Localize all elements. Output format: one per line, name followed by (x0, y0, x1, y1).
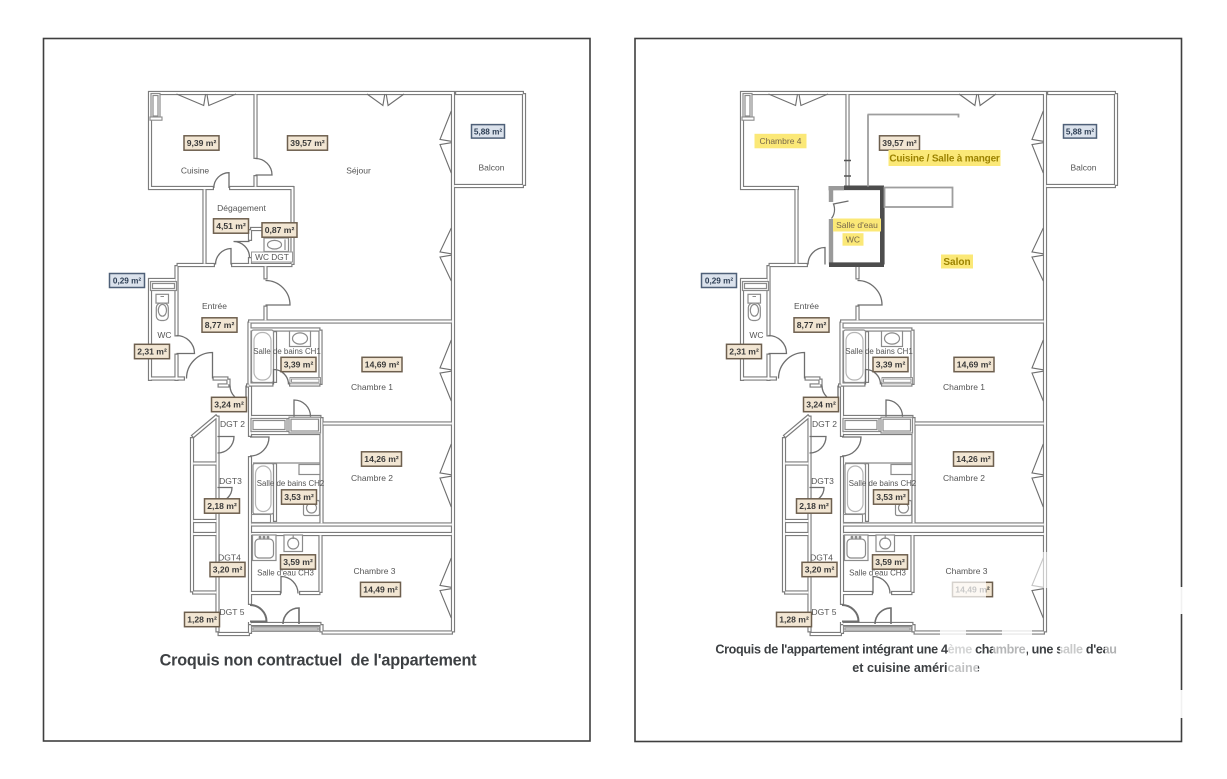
svg-text:Salle de bains CH2: Salle de bains CH2 (849, 479, 917, 488)
svg-text:Séjour: Séjour (346, 166, 371, 176)
svg-text:4,51 m²: 4,51 m² (216, 221, 246, 231)
svg-text:2,31 m²: 2,31 m² (729, 347, 759, 357)
svg-text:8,77 m²: 8,77 m² (797, 320, 827, 330)
svg-text:DGT4: DGT4 (810, 553, 833, 563)
svg-text:Balcon: Balcon (1071, 163, 1097, 173)
svg-text:2,18 m²: 2,18 m² (207, 501, 237, 511)
svg-text:DGT4: DGT4 (218, 553, 241, 563)
svg-text:Balcon: Balcon (479, 163, 505, 173)
svg-text:WC: WC (157, 330, 171, 340)
svg-text:DGT3: DGT3 (219, 476, 242, 486)
svg-text:3,39 m²: 3,39 m² (876, 360, 906, 370)
svg-text:DGT3: DGT3 (811, 476, 834, 486)
svg-text:2,31 m²: 2,31 m² (137, 347, 167, 357)
svg-text:WC: WC (749, 330, 763, 340)
svg-text:5,88 m²: 5,88 m² (1066, 127, 1094, 136)
svg-text:Chambre 1: Chambre 1 (351, 382, 393, 392)
svg-text:Salon: Salon (943, 257, 970, 268)
svg-text:3,39 m²: 3,39 m² (284, 360, 314, 370)
svg-text:3,53 m²: 3,53 m² (876, 492, 906, 502)
svg-text:Cuisine / Salle à manger: Cuisine / Salle à manger (889, 153, 1000, 164)
svg-text:Salle de bains CH2: Salle de bains CH2 (257, 479, 325, 488)
svg-text:Chambre 1: Chambre 1 (943, 382, 985, 392)
svg-text:39,57 m²: 39,57 m² (290, 138, 325, 148)
svg-text:Dégagement: Dégagement (217, 203, 266, 213)
svg-text:0,29 m²: 0,29 m² (705, 277, 733, 286)
svg-text:3,53 m²: 3,53 m² (284, 492, 314, 502)
svg-text:WC DGT: WC DGT (255, 252, 289, 262)
svg-text:Salle d'eau CH3: Salle d'eau CH3 (257, 569, 314, 578)
svg-text:DGT 5: DGT 5 (812, 607, 837, 617)
svg-text:DGT 5: DGT 5 (220, 607, 245, 617)
svg-text:14,69 m²: 14,69 m² (365, 360, 400, 370)
svg-text:2,18 m²: 2,18 m² (799, 501, 829, 511)
svg-text:39,57 m²: 39,57 m² (882, 138, 917, 148)
svg-text:WC: WC (846, 234, 860, 244)
svg-text:14,26 m²: 14,26 m² (956, 454, 991, 464)
svg-text:1,28 m²: 1,28 m² (187, 615, 217, 625)
svg-text:3,24 m²: 3,24 m² (806, 400, 836, 410)
svg-text:Croquis non contractuel de l': Croquis non contractuel de l'appartement (160, 652, 478, 670)
svg-text:14,49 m²: 14,49 m² (363, 585, 398, 595)
svg-text:0,87 m²: 0,87 m² (265, 225, 295, 235)
svg-text:14,26 m²: 14,26 m² (364, 454, 399, 464)
svg-text:Salle d'eau: Salle d'eau (836, 220, 878, 230)
svg-text:Chambre 3: Chambre 3 (353, 566, 395, 576)
svg-text:Entrée: Entrée (202, 301, 227, 311)
svg-text:0,29 m²: 0,29 m² (113, 277, 141, 286)
svg-text:Salle de bains CH1: Salle de bains CH1 (845, 347, 913, 356)
svg-text:3,59 m²: 3,59 m² (875, 557, 905, 567)
svg-text:Entrée: Entrée (794, 301, 819, 311)
svg-text:DGT 2: DGT 2 (812, 419, 837, 429)
svg-text:Croquis de l'appartement intég: Croquis de l'appartement intégrant une 4… (715, 643, 1116, 657)
svg-text:5,88 m²: 5,88 m² (474, 127, 502, 136)
svg-text:9,39 m²: 9,39 m² (187, 138, 217, 148)
svg-text:Chambre 2: Chambre 2 (351, 473, 393, 483)
svg-text:1,28 m²: 1,28 m² (779, 615, 809, 625)
svg-text:Chambre 2: Chambre 2 (943, 473, 985, 483)
svg-text:Salle de bains CH1: Salle de bains CH1 (253, 347, 321, 356)
svg-text:Cuisine: Cuisine (181, 166, 210, 176)
svg-text:3,20 m²: 3,20 m² (805, 565, 835, 575)
svg-text:3,59 m²: 3,59 m² (283, 557, 313, 567)
svg-text:14,69 m²: 14,69 m² (957, 360, 992, 370)
svg-text:3,24 m²: 3,24 m² (214, 400, 244, 410)
svg-text:8,77 m²: 8,77 m² (205, 320, 235, 330)
svg-text:DGT 2: DGT 2 (220, 419, 245, 429)
svg-text:Chambre 4: Chambre 4 (759, 136, 801, 146)
svg-text:3,20 m²: 3,20 m² (213, 565, 243, 575)
svg-text:Chambre 3: Chambre 3 (945, 566, 987, 576)
svg-text:Salle d'eau CH3: Salle d'eau CH3 (849, 569, 906, 578)
